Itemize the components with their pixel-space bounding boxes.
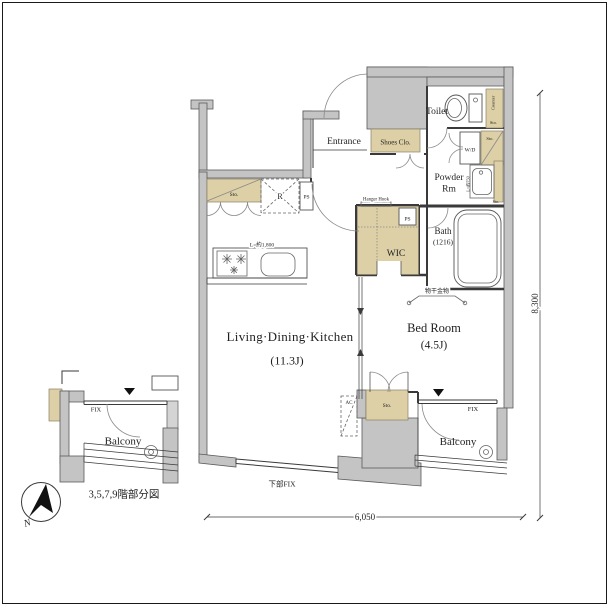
balcony-drain-icon bbox=[145, 446, 158, 459]
wall-block bbox=[362, 418, 418, 468]
shoes-closet-label: Shoes Clo. bbox=[380, 139, 411, 147]
wall-segment bbox=[199, 170, 307, 178]
wall-segment bbox=[357, 390, 366, 418]
balcony-label: Balcony bbox=[440, 436, 477, 448]
washer-dryer-label: W/D bbox=[465, 148, 476, 154]
storage-label: Sto. bbox=[490, 120, 497, 125]
storage-label: Sto. bbox=[486, 136, 493, 141]
floorplan-drawing: Entrance Shoes Clo. Toilet Counter Sto. … bbox=[0, 0, 609, 606]
storage-label: Sto. bbox=[383, 403, 392, 409]
wall-segment bbox=[163, 428, 178, 483]
balcony-drain-icon bbox=[480, 446, 493, 459]
wall-segment bbox=[367, 67, 513, 77]
bedroom-label: Bed Room bbox=[407, 321, 461, 335]
ldk-size-label: (11.3J) bbox=[270, 354, 303, 368]
window-marker-icon bbox=[124, 388, 135, 395]
bath-label: (1216) bbox=[433, 238, 453, 247]
faucet-icon bbox=[479, 171, 482, 174]
wall-block bbox=[60, 456, 84, 482]
balcony-door-arc bbox=[422, 403, 459, 440]
fix-window-lines bbox=[84, 401, 167, 405]
image-border bbox=[3, 3, 607, 604]
pipe-space-label: PS bbox=[404, 217, 410, 223]
storage-label: Sto. bbox=[230, 192, 239, 198]
partition-tick bbox=[357, 308, 364, 315]
fix-window-label: FIX bbox=[468, 406, 479, 413]
bedroom-size-label: (4.5J) bbox=[421, 340, 448, 352]
wall-segment bbox=[497, 408, 507, 460]
kitchen-storage-door-arcs bbox=[207, 202, 261, 216]
wall-segment bbox=[199, 454, 236, 467]
wall-segment bbox=[303, 111, 311, 178]
kitchen-length-label: L=約1,800 bbox=[250, 241, 275, 249]
toilet-label: Toilet bbox=[426, 107, 448, 117]
floorplan-canvas: Entrance Shoes Clo. Toilet Counter Sto. … bbox=[0, 0, 609, 606]
powder-room-label: Rm bbox=[442, 185, 456, 195]
floor-caption-label: 3,5,7,9階部分図 bbox=[89, 488, 160, 501]
vanity-width-label: L=約750 bbox=[465, 176, 472, 191]
bedroom-closet-door-arcs bbox=[370, 372, 408, 392]
bathtub-outline bbox=[454, 210, 501, 287]
wic-label: WIC bbox=[387, 249, 405, 259]
wic-opening bbox=[377, 261, 401, 275]
powder-storage-strip bbox=[494, 161, 503, 202]
wall-line bbox=[62, 371, 79, 384]
bracket-line bbox=[409, 296, 465, 303]
sliding-partition bbox=[357, 277, 364, 399]
washbasin-bowl bbox=[473, 169, 492, 195]
toilet-door-arc bbox=[427, 128, 447, 148]
wall-segment bbox=[427, 77, 504, 86]
ldk-label: Living·Dining·Kitchen bbox=[227, 329, 354, 344]
wall-segment bbox=[504, 67, 513, 408]
counter-label: Counter bbox=[491, 95, 496, 110]
fix-window-lines bbox=[236, 459, 338, 473]
railing-lines bbox=[415, 455, 507, 474]
wall-segment bbox=[199, 172, 207, 462]
bath-label: Bath bbox=[435, 226, 452, 236]
entrance-label: Entrance bbox=[327, 137, 361, 147]
height-dimension-label: 8,300 bbox=[530, 293, 540, 314]
storage-label: Sto. bbox=[493, 199, 500, 204]
bath-door-arc bbox=[428, 208, 448, 228]
window-marker-icon bbox=[433, 389, 444, 397]
bottom-window bbox=[236, 459, 338, 473]
laundry-hardware-label: 物干金物 bbox=[425, 287, 449, 295]
wall-segment bbox=[60, 391, 69, 464]
wall-block bbox=[152, 376, 178, 390]
balcony-label: Balcony bbox=[105, 436, 142, 448]
partition-lines bbox=[359, 277, 362, 399]
wall-segment bbox=[167, 401, 178, 430]
balcony-drain-icon bbox=[484, 450, 489, 455]
laundry-hardware-bracket bbox=[407, 296, 467, 305]
compass bbox=[22, 483, 61, 522]
wall-segment bbox=[303, 111, 339, 119]
wall-segment bbox=[199, 103, 207, 178]
balcony-drain-icon bbox=[149, 450, 154, 455]
fix-window-lines bbox=[418, 400, 497, 404]
bottom-fix-label: 下部FIX bbox=[268, 479, 296, 489]
right-balcony bbox=[415, 389, 507, 474]
balcony-door-arc bbox=[107, 404, 140, 437]
left-inset-plan bbox=[49, 371, 178, 483]
counter-lip bbox=[207, 278, 307, 284]
hall-double-door-arcs bbox=[396, 154, 424, 168]
fix-window-label: FIX bbox=[91, 407, 102, 414]
refrigerator-label: R bbox=[277, 192, 283, 201]
north-arrow-icon bbox=[29, 484, 53, 517]
powder-room-label: Powder bbox=[434, 173, 464, 183]
partition-tick bbox=[357, 349, 364, 356]
width-dimension-label: 6,050 bbox=[355, 512, 376, 522]
ldk-door-arc bbox=[312, 184, 359, 231]
hanger-hook-label: Hanger Hook bbox=[363, 198, 390, 203]
door-jamb-lines bbox=[370, 372, 408, 392]
ac-label: AC bbox=[346, 401, 354, 406]
pipe-space-label: PS bbox=[303, 195, 309, 201]
